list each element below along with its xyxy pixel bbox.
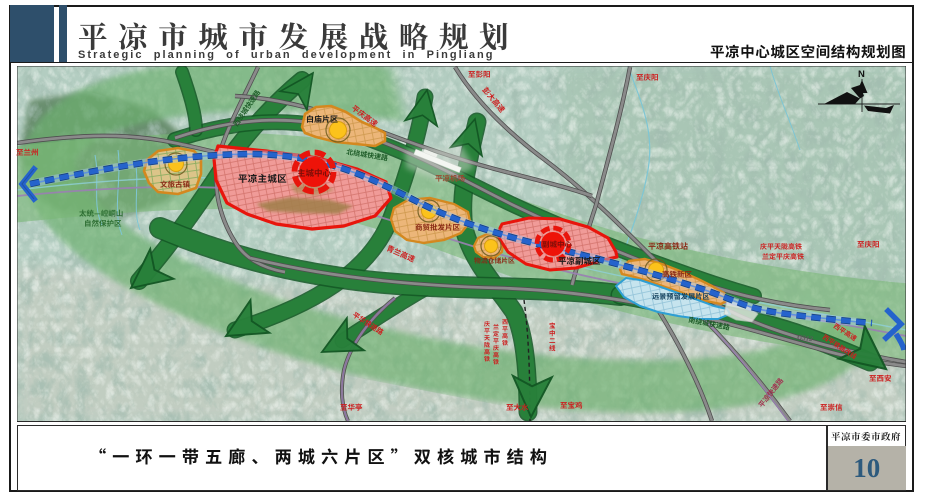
svg-text:N: N	[858, 69, 865, 80]
